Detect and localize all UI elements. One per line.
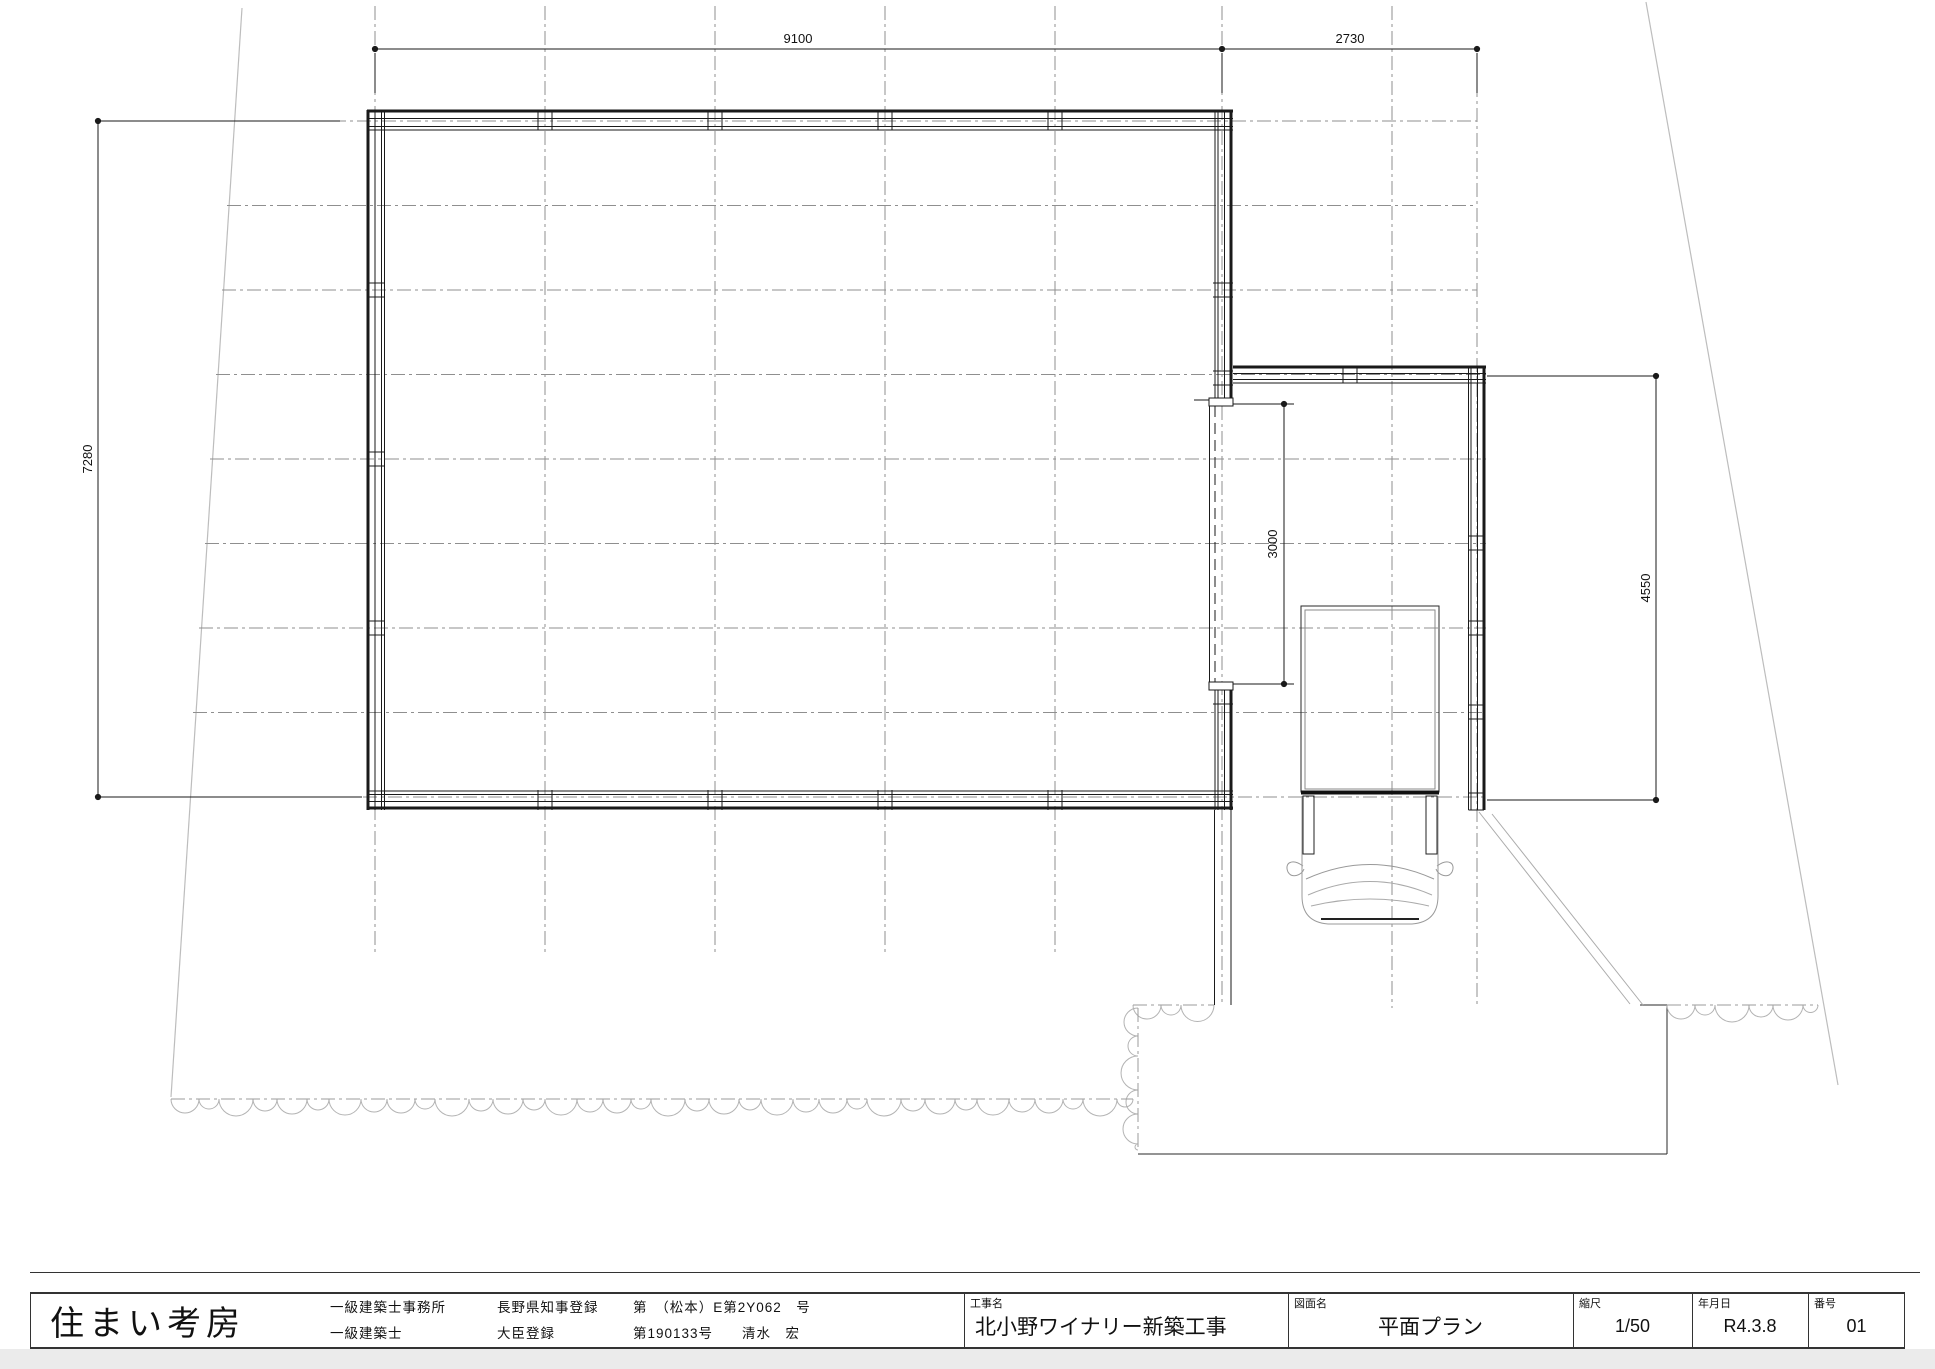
sheet-bottom-rule (30, 1272, 1920, 1273)
license-office-title: 一級建築士事務所 (330, 1300, 446, 1315)
sheet-number-value: 01 (1808, 1308, 1905, 1344)
floor-plan-sheet: 9100 2730 7280 3000 4550 (0, 0, 1935, 1369)
site-boundary-right (1646, 2, 1838, 1085)
license-column-titles: 一級建築士事務所 一級建築士 (330, 1294, 446, 1346)
slope-scallop-lines (171, 1005, 1818, 1150)
date-value: R4.3.8 (1692, 1308, 1808, 1344)
dimension-lines (95, 46, 1658, 802)
driveway-ramp-edges (1479, 812, 1643, 1005)
retaining-wall-stub (1215, 810, 1232, 1005)
vehicle-left-mirror (1287, 862, 1304, 876)
license-office-number: 第 （松本）E第2Y062 号 (633, 1300, 811, 1315)
license-architect-title: 一級建築士 (330, 1326, 446, 1341)
floor-plan-drawing: 9100 2730 7280 3000 4550 (0, 0, 1935, 1369)
license-column-numbers: 第 （松本）E第2Y062 号 第190133号 清水 宏 (633, 1294, 811, 1346)
dim-top-width: 9100 (784, 31, 813, 46)
grid-lines (188, 6, 1486, 1008)
license-architect-registry: 大臣登録 (497, 1326, 599, 1341)
vehicle-windshield (1306, 865, 1434, 880)
license-architect-number: 第190133号 清水 宏 (633, 1326, 811, 1341)
vehicle (1287, 606, 1453, 924)
column-marks (367, 110, 1484, 810)
scale-value: 1/50 (1573, 1308, 1692, 1344)
project-name-value: 北小野ワイナリー新築工事 (975, 1308, 1275, 1344)
dim-top-right-width: 2730 (1336, 31, 1365, 46)
site-boundary-left (171, 8, 242, 1097)
vehicle-left-pillar (1303, 796, 1314, 854)
dimension-labels: 9100 2730 7280 3000 4550 (80, 31, 1653, 602)
lower-terrace (1138, 1005, 1667, 1154)
vehicle-cargo-roof (1301, 606, 1439, 792)
license-office-registry: 長野県知事登録 (497, 1300, 599, 1315)
company-name: 住まい考房 (50, 1297, 300, 1343)
building-walls (367, 110, 1486, 810)
license-column-registry: 長野県知事登録 大臣登録 (497, 1294, 599, 1346)
vehicle-right-mirror (1436, 862, 1453, 876)
vehicle-body-outline (1302, 796, 1438, 924)
vehicle-right-pillar (1426, 796, 1437, 854)
dim-left-height: 7280 (80, 445, 95, 474)
site-boundary-lines (171, 2, 1838, 1097)
drawing-name-value: 平面プラン (1288, 1308, 1573, 1344)
dim-right-height: 4550 (1638, 574, 1653, 603)
dim-opening-height: 3000 (1265, 530, 1280, 559)
page-bottom-margin (0, 1349, 1935, 1369)
